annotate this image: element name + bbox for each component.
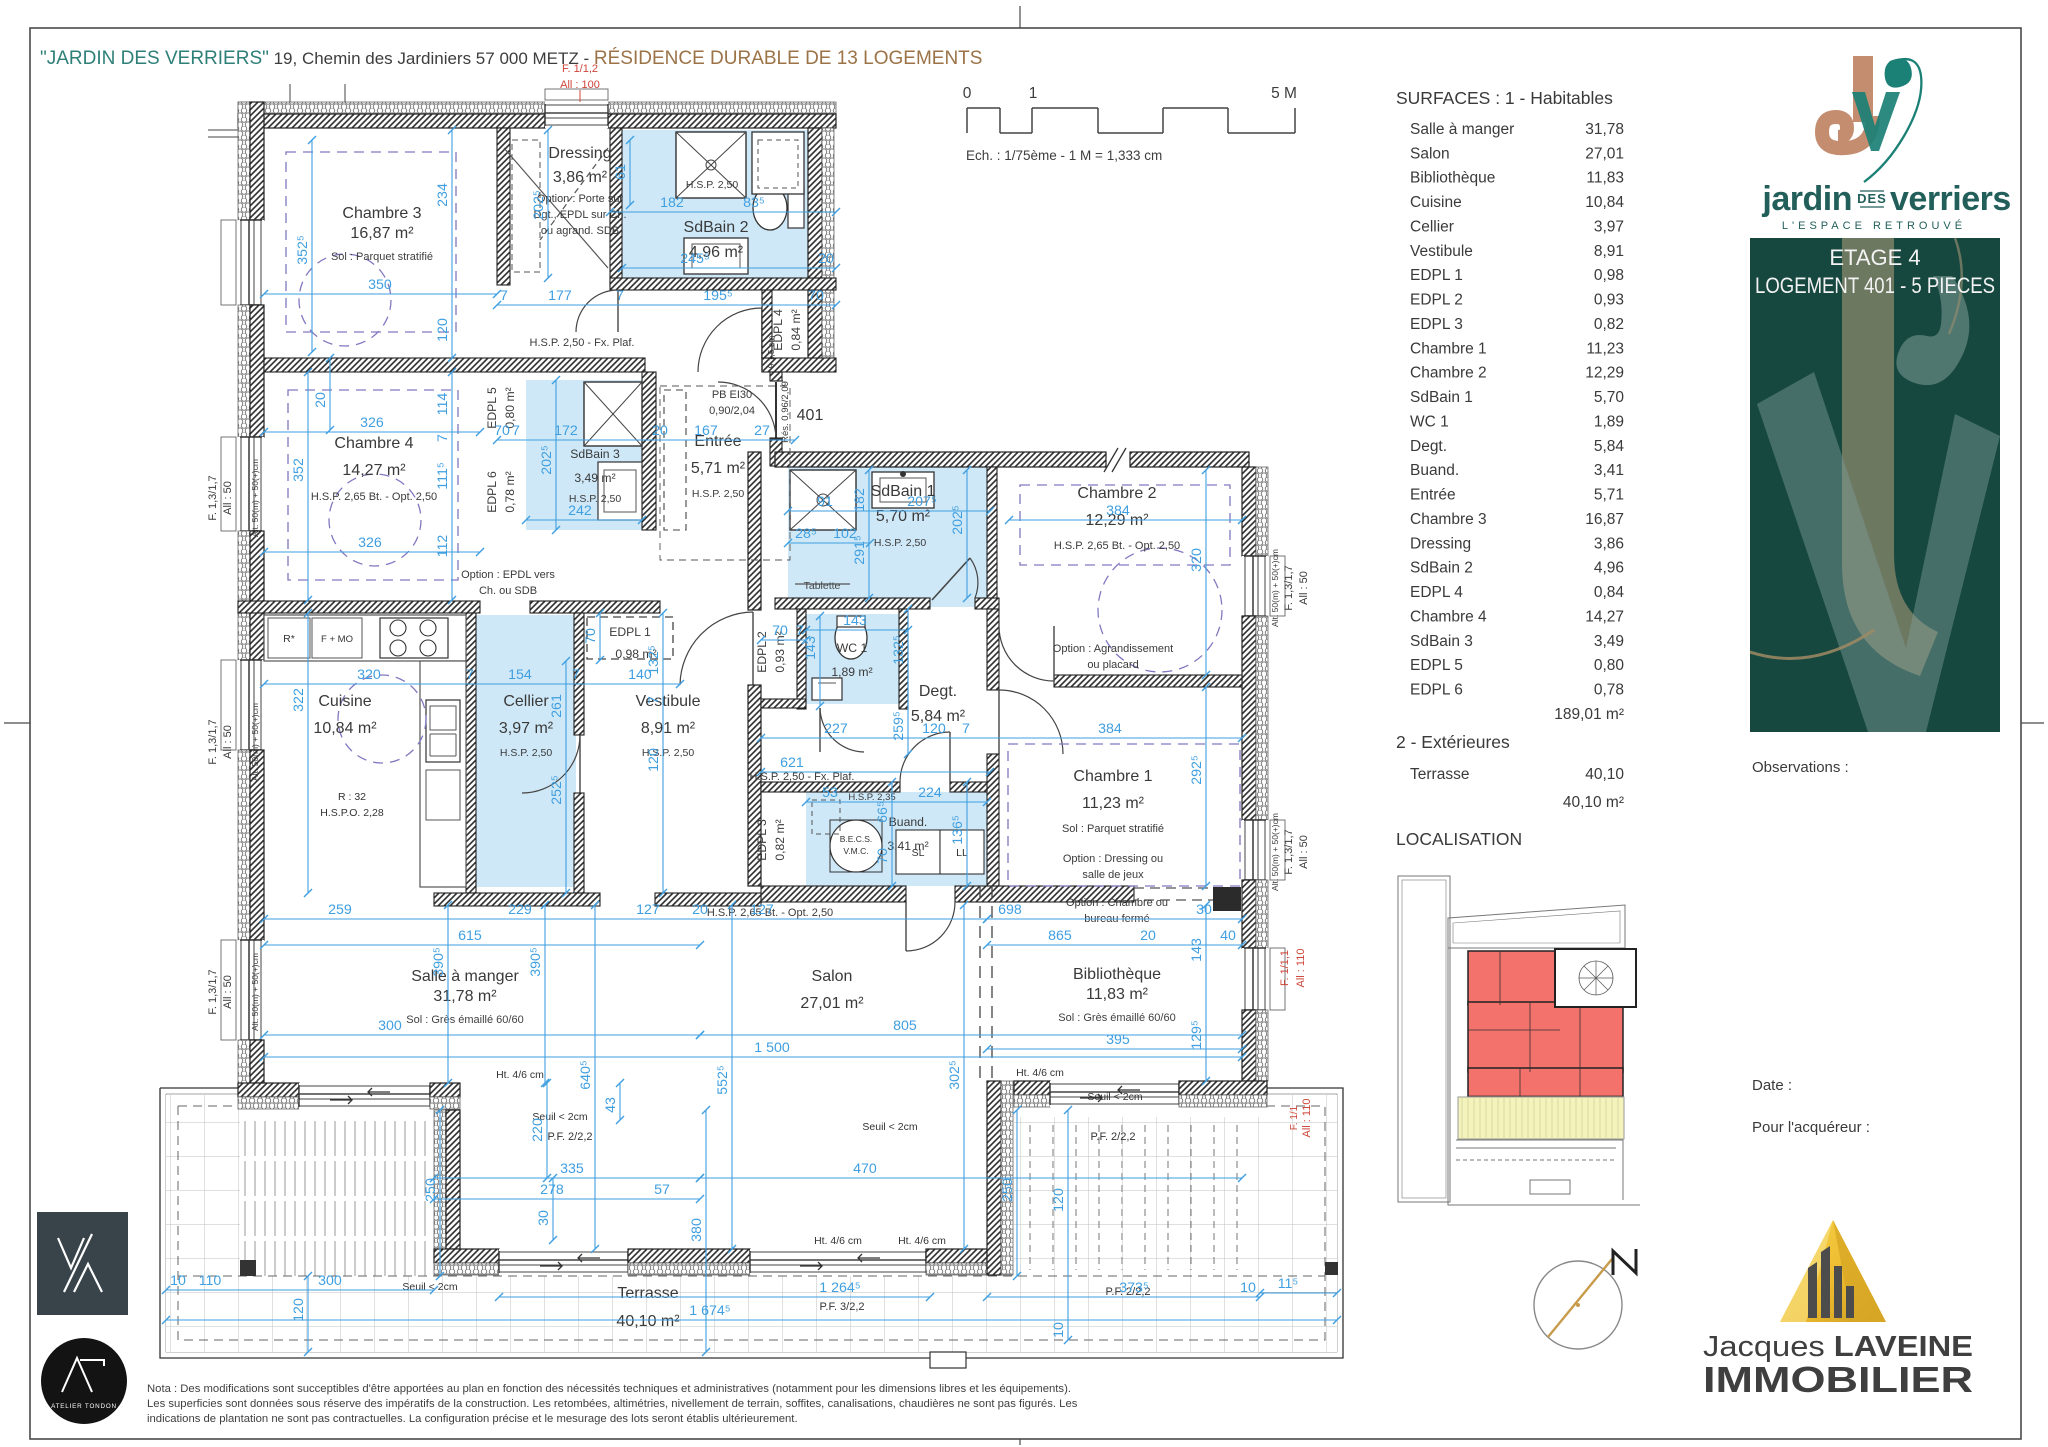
svg-text:ATELIER TONDON: ATELIER TONDON [51,1403,117,1410]
svg-text:57: 57 [654,1182,670,1198]
svg-text:Terrasse: Terrasse [617,1285,678,1302]
svg-text:Alt. 50(m) + 50(+)cm: Alt. 50(m) + 50(+)cm [250,953,260,1031]
svg-text:Cuisine: Cuisine [318,693,371,710]
svg-text:Les superficies sont données s: Les superficies sont données sous réserv… [147,1398,1078,1410]
svg-text:167: 167 [694,423,718,439]
svg-text:F + MO: F + MO [321,634,353,645]
svg-text:111⁵: 111⁵ [435,462,451,490]
svg-text:WC 1: WC 1 [837,641,868,655]
svg-text:390⁵: 390⁵ [528,947,544,977]
svg-text:11⁵: 11⁵ [1278,1276,1299,1292]
svg-text:242: 242 [568,503,592,519]
svg-text:43: 43 [603,1097,619,1113]
svg-text:7: 7 [435,434,451,442]
svg-text:4,96: 4,96 [1594,560,1624,577]
svg-text:EDPL 5: EDPL 5 [1410,657,1463,674]
svg-text:380: 380 [689,1218,705,1242]
svg-text:11,23: 11,23 [1586,340,1624,357]
svg-text:Option : Porte sur: Option : Porte sur [537,193,624,205]
svg-text:390⁵: 390⁵ [431,947,447,977]
svg-text:0,78 m²: 0,78 m² [503,471,517,512]
svg-text:LL: LL [956,847,968,859]
svg-text:20: 20 [818,251,834,267]
svg-text:91: 91 [817,494,833,510]
svg-text:5,70: 5,70 [1594,389,1625,406]
svg-text:40,10 m²: 40,10 m² [616,1313,680,1330]
svg-text:Ech. : 1/75ème - 1 M = 1,333 c: Ech. : 1/75ème - 1 M = 1,333 cm [966,148,1162,163]
svg-text:All : 50: All : 50 [1298,571,1310,605]
svg-text:143: 143 [1189,938,1205,962]
svg-text:SdBain 3: SdBain 3 [570,447,620,461]
svg-text:Entrée: Entrée [1410,487,1456,504]
svg-text:Chambre 3: Chambre 3 [342,205,421,222]
svg-text:61: 61 [613,164,629,180]
svg-text:EDPL 6: EDPL 6 [1410,682,1463,699]
svg-text:8,91: 8,91 [1594,243,1624,260]
svg-text:10: 10 [170,1273,186,1289]
svg-text:143: 143 [843,613,867,629]
svg-text:5,84: 5,84 [1594,438,1625,455]
svg-text:7: 7 [572,667,580,683]
svg-text:12,29: 12,29 [1585,365,1624,382]
svg-text:7: 7 [796,623,804,639]
svg-text:136⁵: 136⁵ [950,815,966,845]
svg-text:202⁵: 202⁵ [531,190,547,220]
svg-text:Buand.: Buand. [889,815,928,829]
svg-text:All : 50: All : 50 [222,975,234,1009]
svg-text:40: 40 [1220,928,1236,944]
svg-text:10: 10 [1051,1322,1067,1338]
svg-text:Sol : Parquet stratifié: Sol : Parquet stratifié [331,251,433,263]
svg-text:615: 615 [458,928,482,944]
svg-text:Alt. 50(m) + 50(+)cm: Alt. 50(m) + 50(+)cm [250,459,260,537]
svg-text:3,49 m²: 3,49 m² [574,471,615,485]
svg-text:0,90/2,04: 0,90/2,04 [709,405,755,417]
svg-text:229: 229 [508,902,532,918]
svg-text:ou agrand. SDB: ou agrand. SDB [541,225,619,237]
svg-text:Sol : Grès émaillé 60/60: Sol : Grès émaillé 60/60 [406,1014,523,1026]
svg-text:Bibliothèque: Bibliothèque [1410,170,1495,187]
svg-text:5,71: 5,71 [1594,487,1624,504]
svg-text:Seuil < 2cm: Seuil < 2cm [402,1281,457,1293]
svg-text:3,41 m²: 3,41 m² [887,839,928,853]
svg-text:189,01 m²: 189,01 m² [1554,706,1624,723]
svg-text:V.M.C.: V.M.C. [843,846,868,856]
svg-text:172: 172 [554,423,578,439]
svg-text:640⁵: 640⁵ [578,1060,594,1090]
svg-text:30: 30 [536,1210,552,1226]
svg-text:120: 120 [435,318,451,342]
svg-text:SdBain 1: SdBain 1 [1410,389,1473,406]
svg-text:H.S.P.O. 2,28: H.S.P.O. 2,28 [320,807,384,819]
svg-text:Option : Agrandissement: Option : Agrandissement [1053,643,1173,655]
svg-text:202⁵: 202⁵ [539,445,555,475]
svg-text:F. 1,3/1,7: F. 1,3/1,7 [1283,829,1295,874]
svg-text:300: 300 [318,1273,342,1289]
svg-text:Seuil < 2cm: Seuil < 2cm [862,1121,917,1133]
svg-text:401: 401 [797,407,824,424]
svg-text:0,98: 0,98 [1594,267,1624,284]
svg-text:5 M: 5 M [1271,85,1297,102]
svg-text:83⁵: 83⁵ [743,195,765,211]
svg-text:0,93: 0,93 [1594,292,1624,309]
svg-text:120: 120 [1051,1188,1067,1212]
svg-text:Option : Chambre ou: Option : Chambre ou [1066,897,1168,909]
svg-text:Sol : Parquet stratifié: Sol : Parquet stratifié [1062,823,1164,835]
svg-text:11,83: 11,83 [1586,170,1624,187]
svg-text:352⁵: 352⁵ [295,235,311,265]
svg-text:Ht. 4/6 cm: Ht. 4/6 cm [496,1069,544,1081]
svg-text:320: 320 [357,667,381,683]
svg-text:66⁵: 66⁵ [875,801,891,823]
svg-text:H.S.P. 2,50: H.S.P. 2,50 [874,537,927,549]
svg-text:Option : Dressing ou: Option : Dressing ou [1063,853,1163,865]
svg-text:Buand.: Buand. [1410,462,1459,479]
svg-text:All : 100: All : 100 [560,79,600,91]
svg-text:182: 182 [660,195,684,211]
svg-text:11,23 m²: 11,23 m² [1082,795,1145,812]
svg-text:28⁵: 28⁵ [795,526,817,542]
svg-text:F. 1/1,1: F. 1/1,1 [1279,950,1291,986]
svg-text:Dressing: Dressing [548,145,611,162]
svg-text:7: 7 [646,696,662,704]
svg-text:177: 177 [548,288,572,304]
svg-text:16,87 m²: 16,87 m² [350,225,414,242]
svg-text:Ht. 4/6 cm: Ht. 4/6 cm [898,1235,946,1247]
svg-text:P.F. 3/2,2: P.F. 3/2,2 [819,1301,864,1313]
svg-text:Ht. 4/6 cm: Ht. 4/6 cm [814,1235,862,1247]
svg-text:Salon: Salon [1410,145,1450,162]
svg-text:H.S.P. 2,50: H.S.P. 2,50 [500,747,553,759]
svg-text:234: 234 [435,183,451,207]
svg-text:395: 395 [1106,1032,1130,1048]
svg-text:All : 110: All : 110 [1301,1099,1313,1138]
svg-text:All : 50: All : 50 [1298,835,1310,869]
svg-text:1 264⁵: 1 264⁵ [819,1280,861,1296]
svg-text:Chambre 2: Chambre 2 [1077,485,1156,502]
svg-text:ETAGE 4: ETAGE 4 [1829,245,1920,270]
svg-text:120: 120 [922,721,946,737]
svg-text:70: 70 [583,628,599,644]
svg-text:300: 300 [378,1018,402,1034]
svg-text:245⁵: 245⁵ [680,251,710,267]
svg-text:10,84: 10,84 [1585,194,1624,211]
svg-text:Chambre 4: Chambre 4 [1410,608,1487,625]
svg-text:195⁵: 195⁵ [703,288,733,304]
svg-text:Chambre 2: Chambre 2 [1410,365,1487,382]
svg-text:WC 1: WC 1 [1410,413,1449,430]
svg-text:40,10: 40,10 [1585,766,1624,783]
svg-text:0,80: 0,80 [1594,657,1625,674]
svg-text:16,87: 16,87 [1585,511,1624,528]
svg-text:132⁵: 132⁵ [646,645,662,675]
svg-text:Alt. 50(m) + 50(+)cm: Alt. 50(m) + 50(+)cm [1270,813,1280,891]
svg-text:114: 114 [435,393,451,416]
svg-text:PB EI30: PB EI30 [712,389,752,401]
svg-text:Chambre 3: Chambre 3 [1410,511,1487,528]
svg-text:ou placard: ou placard [1087,659,1138,671]
svg-text:350: 350 [368,277,392,293]
svg-text:805: 805 [893,1018,917,1034]
svg-text:8,91 m²: 8,91 m² [641,720,696,737]
svg-text:7: 7 [616,288,624,304]
svg-text:EDPL 3: EDPL 3 [1410,316,1463,333]
svg-text:250: 250 [1000,1178,1016,1202]
svg-text:384: 384 [1106,503,1130,519]
svg-text:Chambre 4: Chambre 4 [334,435,413,452]
svg-text:698: 698 [998,902,1022,918]
svg-text:H.S.P. 2,50 - Fx. Plaf.: H.S.P. 2,50 - Fx. Plaf. [530,337,635,349]
svg-text:H.S.P. 2,65 Bt. - Opt. 2,50: H.S.P. 2,65 Bt. - Opt. 2,50 [1054,540,1180,552]
svg-text:320: 320 [1189,548,1205,572]
svg-text:291⁵: 291⁵ [852,535,868,565]
svg-text:Salle à manger: Salle à manger [1410,121,1514,138]
svg-text:salle de jeux: salle de jeux [1082,869,1144,881]
svg-text:1 500: 1 500 [754,1040,790,1056]
svg-text:Bibliothèque: Bibliothèque [1073,966,1161,983]
svg-text:SURFACES : 1 - Habitables: SURFACES : 1 - Habitables [1396,88,1613,108]
svg-text:Tablette: Tablette [804,580,841,592]
svg-text:1,89 m²: 1,89 m² [831,665,872,679]
svg-text:3,86: 3,86 [1594,535,1624,552]
svg-text:Alt. 50(m) + 50(+)cm: Alt. 50(m) + 50(+)cm [250,703,260,781]
svg-text:326: 326 [360,415,384,431]
svg-text:IMMOBILIER: IMMOBILIER [1703,1359,1973,1400]
svg-text:384: 384 [1098,721,1122,737]
svg-text:120: 120 [291,1298,307,1322]
svg-text:40,10 m²: 40,10 m² [1563,794,1624,811]
svg-text:Sol : Grès émaillé 60/60: Sol : Grès émaillé 60/60 [1058,1012,1175,1024]
svg-text:H.S.P. 2,50: H.S.P. 2,50 [686,179,739,191]
svg-text:EDPL 2: EDPL 2 [1410,292,1463,309]
svg-text:70: 70 [772,623,788,639]
svg-text:27: 27 [754,423,770,439]
svg-text:14,27: 14,27 [1585,608,1624,625]
svg-text:Seuil < 2cm: Seuil < 2cm [1087,1091,1142,1103]
svg-text:3,86 m²: 3,86 m² [553,169,608,186]
svg-text:7: 7 [512,423,520,439]
svg-text:352: 352 [291,458,307,482]
svg-text:F. 1/1: F. 1/1 [1289,1105,1300,1130]
svg-text:"JARDIN DES VERRIERS" 19, Chem: "JARDIN DES VERRIERS" 19, Chemin des Jar… [40,48,982,69]
svg-text:indications de plantation ne s: indications de plantation ne sont pas co… [147,1413,798,1425]
svg-text:0,82 m²: 0,82 m² [773,819,787,860]
svg-text:11,83 m²: 11,83 m² [1086,986,1149,1003]
svg-text:jardin: jardin [1761,180,1852,218]
svg-text:F. 1,3/1,7: F. 1,3/1,7 [207,719,219,764]
svg-text:322: 322 [291,688,307,712]
svg-text:1: 1 [1029,85,1038,102]
svg-text:227: 227 [824,721,848,737]
svg-text:20: 20 [313,392,329,408]
svg-text:0,84: 0,84 [1594,584,1625,601]
svg-text:373⁵: 373⁵ [1119,1280,1149,1296]
svg-text:7: 7 [466,667,474,683]
svg-text:220: 220 [530,1118,546,1142]
svg-text:P.F. 2/2,2: P.F. 2/2,2 [1090,1131,1135,1143]
svg-text:202⁵: 202⁵ [950,505,966,535]
svg-text:EDPL 2: EDPL 2 [755,631,769,673]
svg-text:3,97: 3,97 [1594,218,1624,235]
svg-text:865: 865 [1048,928,1072,944]
svg-text:Dgt., EPDL sur Ch.: Dgt., EPDL sur Ch. [533,209,626,221]
svg-text:EDPL 3: EDPL 3 [755,819,769,861]
svg-text:Cellier: Cellier [503,693,549,710]
svg-text:278: 278 [540,1182,564,1198]
svg-text:Cuisine: Cuisine [1410,194,1462,211]
svg-text:552⁵: 552⁵ [715,1065,731,1095]
svg-text:LOCALISATION: LOCALISATION [1396,829,1522,849]
svg-text:Nota : Des modifications sont: Nota : Des modifications sont succeptibl… [147,1383,1071,1395]
svg-text:0,84 m²: 0,84 m² [789,309,803,350]
svg-text:259: 259 [328,902,352,918]
svg-text:F. 1,3/1,7: F. 1,3/1,7 [1283,565,1295,610]
svg-text:7: 7 [962,721,970,737]
svg-text:R*: R* [283,633,295,645]
svg-text:110: 110 [199,1273,222,1289]
svg-text:3,97 m²: 3,97 m² [499,720,554,737]
svg-text:F. 1/1,2: F. 1/1,2 [562,63,598,75]
svg-text:EDPL 1: EDPL 1 [609,625,651,639]
svg-text:Ht. 4/6 cm: Ht. 4/6 cm [1016,1067,1064,1079]
svg-text:0,82: 0,82 [1594,316,1624,333]
svg-text:326: 326 [358,535,382,551]
svg-text:R : 32: R : 32 [338,791,366,803]
svg-text:127: 127 [750,902,774,918]
svg-text:1,89: 1,89 [1594,413,1624,430]
svg-text:Observations :: Observations : [1752,759,1849,776]
svg-text:224: 224 [918,785,942,801]
svg-text:Terrasse: Terrasse [1410,766,1469,783]
svg-text:Vestibule: Vestibule [1410,243,1473,260]
svg-text:verriers: verriers [1890,180,2011,218]
svg-text:Chambre 1: Chambre 1 [1073,768,1152,785]
svg-text:F. 1,3/1,7: F. 1,3/1,7 [207,475,219,520]
svg-text:Salon: Salon [812,968,853,985]
svg-text:31,78 m²: 31,78 m² [433,988,497,1005]
svg-text:70: 70 [494,423,510,439]
svg-text:SdBain 2: SdBain 2 [1410,560,1473,577]
svg-text:3,41: 3,41 [1594,462,1624,479]
svg-text:Ch. ou SDB: Ch. ou SDB [479,585,537,597]
svg-text:Pour l'acquéreur :: Pour l'acquéreur : [1752,1119,1870,1136]
svg-text:Degt.: Degt. [1410,438,1447,455]
svg-text:F. 1,3/1,7: F. 1,3/1,7 [207,969,219,1014]
svg-text:261: 261 [549,694,565,718]
svg-text:302⁵: 302⁵ [947,1060,963,1090]
svg-text:L'ESPACE RETROUVÉ: L'ESPACE RETROUVÉ [1782,219,1966,232]
svg-text:129⁵: 129⁵ [1189,1020,1205,1050]
svg-text:112: 112 [435,535,451,558]
svg-text:EDPL 1: EDPL 1 [1410,267,1463,284]
svg-text:Chambre 1: Chambre 1 [1410,340,1487,357]
svg-text:127: 127 [636,902,660,918]
svg-text:182: 182 [852,488,868,512]
svg-text:53: 53 [822,785,838,801]
svg-text:30: 30 [1196,902,1212,918]
svg-text:132⁵: 132⁵ [891,635,907,665]
svg-text:B.E.C.S.: B.E.C.S. [840,834,873,844]
svg-text:0,78: 0,78 [1594,682,1624,699]
svg-text:EDPL 6: EDPL 6 [485,471,499,513]
svg-text:H.S.P. 2,50: H.S.P. 2,50 [692,488,745,500]
svg-text:154: 154 [508,667,532,683]
svg-text:Date :: Date : [1752,1077,1792,1094]
svg-text:259⁵: 259⁵ [891,711,907,741]
svg-text:9 1,5 cm: 9 1,5 cm [766,336,776,369]
svg-text:All : 50: All : 50 [222,481,234,515]
svg-text:5,71 m²: 5,71 m² [691,460,746,477]
svg-text:Cellier: Cellier [1410,218,1454,235]
svg-text:70: 70 [875,848,891,864]
svg-text:250: 250 [423,1178,439,1202]
svg-text:20: 20 [692,902,708,918]
svg-text:Salle à manger: Salle à manger [411,968,519,985]
svg-text:H.S.P. 2,65 Bt. - Opt. 2,50: H.S.P. 2,65 Bt. - Opt. 2,50 [311,491,437,503]
svg-text:20: 20 [652,423,668,439]
svg-text:335: 335 [560,1161,584,1177]
svg-text:SdBain 3: SdBain 3 [1410,633,1473,650]
svg-text:EDPL 4: EDPL 4 [1410,584,1463,601]
svg-text:Dressing: Dressing [1410,535,1471,552]
svg-text:Option : EPDL vers: Option : EPDL vers [461,569,555,581]
svg-text:3,49: 3,49 [1594,633,1624,650]
svg-text:10,84 m²: 10,84 m² [313,720,377,737]
svg-text:27,01: 27,01 [1585,145,1624,162]
svg-text:207⁵: 207⁵ [907,494,937,510]
svg-text:All : 110: All : 110 [1295,949,1307,988]
svg-text:292⁵: 292⁵ [1189,755,1205,785]
svg-text:20: 20 [1140,928,1156,944]
svg-text:70: 70 [808,288,824,304]
svg-text:470: 470 [853,1161,877,1177]
svg-text:H.S.P. 2,50 - Fx. Plaf.: H.S.P. 2,50 - Fx. Plaf. [750,771,855,783]
svg-text:Degt.: Degt. [919,683,957,700]
svg-text:2 - Extérieures: 2 - Extérieures [1396,732,1510,752]
svg-text:10: 10 [1240,1280,1256,1296]
svg-text:Rés. 0,96/2,09: Rés. 0,96/2,09 [780,381,791,443]
svg-text:120: 120 [646,748,662,772]
svg-text:252⁵: 252⁵ [549,775,565,805]
svg-text:LOGEMENT 401 - 5 PIECES: LOGEMENT 401 - 5 PIECES [1755,273,1995,298]
svg-text:All : 50: All : 50 [222,725,234,759]
svg-text:621: 621 [780,755,804,771]
svg-text:Alt. 50(m) + 50(+)cm: Alt. 50(m) + 50(+)cm [1270,549,1280,627]
svg-text:0: 0 [963,85,972,102]
svg-text:14,27 m²: 14,27 m² [342,462,406,479]
svg-text:P.F. 2/2,2: P.F. 2/2,2 [547,1131,592,1143]
svg-text:SdBain 2: SdBain 2 [684,219,749,236]
svg-text:31,78: 31,78 [1585,121,1624,138]
svg-text:DES: DES [1857,191,1887,206]
svg-text:1 674⁵: 1 674⁵ [689,1303,731,1319]
svg-text:27,01 m²: 27,01 m² [800,995,864,1012]
